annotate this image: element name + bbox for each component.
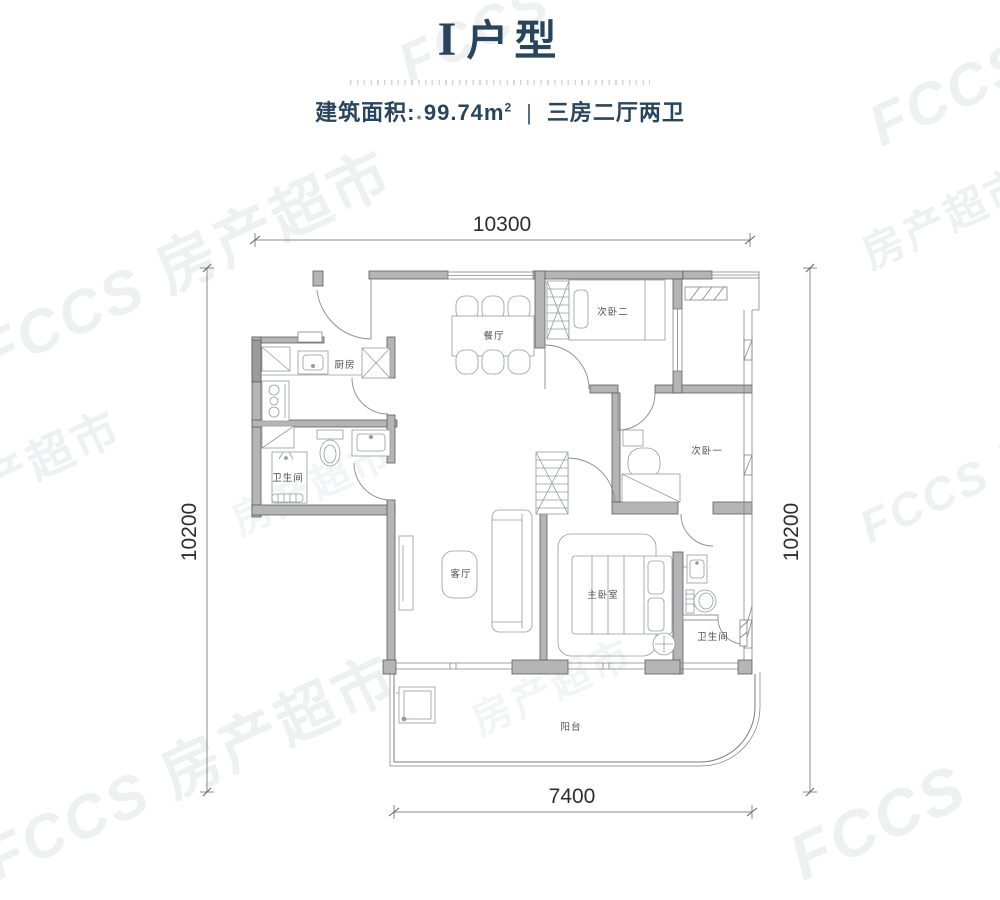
dining-chairs-bottom <box>456 350 530 374</box>
dim-bottom-value: 7400 <box>549 785 596 808</box>
kitchen-appliance <box>362 348 390 378</box>
balcony-outline <box>390 672 760 766</box>
bedroom1-chair <box>628 448 660 478</box>
bath1-shelf <box>262 426 294 448</box>
area-value: 99.74m <box>424 100 505 125</box>
label-bedroom1: 次卧一 <box>691 445 723 457</box>
bath2-sink <box>683 555 707 583</box>
furniture <box>256 280 716 723</box>
header: I户型 建筑面积:●99.74m2|三房二厅两卫 <box>0 0 1000 127</box>
subtitle: 建筑面积:●99.74m2|三房二厅两卫 <box>0 95 1000 127</box>
area-superscript: 2 <box>504 101 512 115</box>
kitchen-door <box>352 378 388 414</box>
hallway-wardrobe <box>536 452 568 514</box>
bath1-sink <box>352 430 390 456</box>
title-suffix: 户型 <box>466 17 562 64</box>
floorplan-svg: 10300 10200 10200 7400 <box>0 0 1000 900</box>
page-title: I户型 <box>0 16 1000 64</box>
label-balcony: 阳台 <box>560 721 581 733</box>
dimension-right: 10200 <box>780 264 817 796</box>
label-master: 主卧室 <box>587 589 619 601</box>
dimension-left: 10200 <box>178 264 214 796</box>
bedroom2-headboard <box>547 281 569 339</box>
master-stool <box>653 633 675 655</box>
dimension-top: 10300 <box>250 213 755 247</box>
bedroom1-door <box>618 393 655 430</box>
dim-right-value: 10200 <box>780 503 803 561</box>
title-prefix: I <box>438 13 457 66</box>
label-kitchen: 厨房 <box>334 359 355 371</box>
area-label: 建筑面积: <box>315 100 415 125</box>
kitchen-fridge <box>262 347 290 371</box>
subtitle-separator: | <box>526 100 533 125</box>
bath2-partition <box>683 615 718 620</box>
living-sofa <box>492 510 532 632</box>
bath1-toilet <box>317 430 343 466</box>
label-dining: 餐厅 <box>483 330 504 342</box>
bedroom1-stand <box>623 430 643 446</box>
dimension-bottom: 7400 <box>389 785 757 819</box>
label-bath2: 卫生间 <box>697 631 729 643</box>
balcony-washer <box>396 687 435 723</box>
bath1-mat <box>272 494 303 502</box>
entry-door <box>317 279 371 339</box>
layout-spec: 三房二厅两卫 <box>547 100 685 125</box>
label-bath1: 卫生间 <box>272 472 304 484</box>
kitchen-stove <box>262 381 289 421</box>
bath2-door-upper <box>681 514 713 546</box>
dim-left-value: 10200 <box>178 503 201 561</box>
kitchen-sink <box>298 351 328 374</box>
label-living: 客厅 <box>450 568 471 580</box>
master-door <box>568 458 615 502</box>
living-tv-unit <box>399 536 413 610</box>
label-bedroom2: 次卧二 <box>597 306 629 318</box>
bedroom2-door <box>545 345 589 389</box>
bedroom1-desk <box>622 474 680 502</box>
bath1-door <box>354 463 391 500</box>
dim-top-value: 10300 <box>473 213 531 236</box>
decor-dotted-line <box>350 80 650 85</box>
bath2-toilet <box>686 590 716 613</box>
area-bullet: ● <box>416 112 422 122</box>
ac-platform-hatch <box>685 287 727 300</box>
floorplan-page: FCCS FCCS 房产超市 房产超市 FCCS 房产超市 FCCS 房产超市 … <box>0 0 1000 900</box>
